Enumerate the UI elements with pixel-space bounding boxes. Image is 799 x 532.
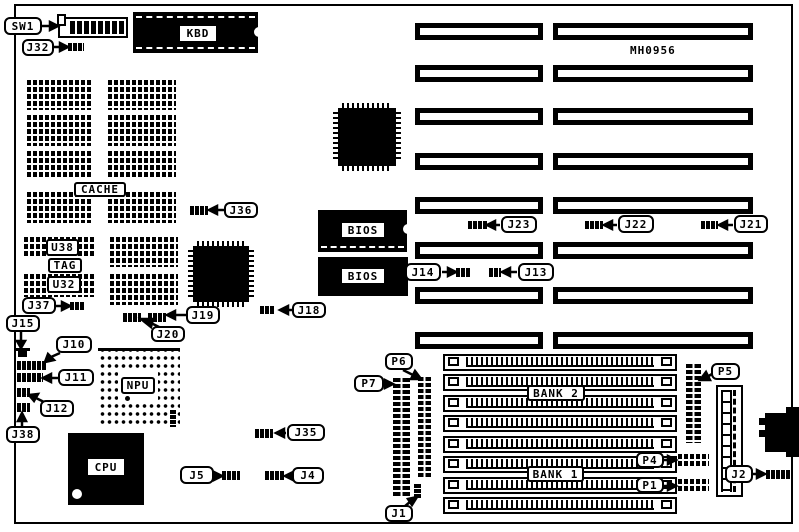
isa-slot xyxy=(415,242,543,259)
callout-j18: J18 xyxy=(292,302,326,318)
j23-connector xyxy=(468,221,487,229)
simm-socket xyxy=(443,354,677,371)
p5-connector xyxy=(686,364,701,443)
callout-j10: J10 xyxy=(56,336,92,353)
keyboard-din-pin xyxy=(759,430,765,437)
qfp-pins-right xyxy=(396,112,401,162)
callout-p6: P6 xyxy=(385,353,413,370)
j38-connector xyxy=(17,403,30,412)
j13-connector xyxy=(489,268,501,277)
j36-connector xyxy=(190,206,208,215)
j21-connector xyxy=(701,221,718,229)
j18-connector xyxy=(260,306,275,314)
p4-connector xyxy=(678,454,709,468)
callout-cache: CACHE xyxy=(74,182,126,197)
kbd-chip-dash-top xyxy=(136,16,255,18)
callout-p5: P5 xyxy=(711,363,740,380)
bios-label-1: BIOS xyxy=(342,223,384,237)
callout-j20: J20 xyxy=(151,326,185,342)
callout-j23: J23 xyxy=(501,216,537,233)
j15-connector xyxy=(15,348,30,357)
callout-j13: J13 xyxy=(518,263,554,281)
p7-connector xyxy=(393,378,410,497)
callout-j32: J32 xyxy=(22,39,54,56)
keyboard-din-flange xyxy=(786,407,799,457)
callout-j19: J19 xyxy=(186,306,220,324)
isa-slot xyxy=(553,287,753,304)
bios-chip-dash xyxy=(321,246,404,248)
bios-label-2: BIOS xyxy=(342,269,384,283)
cpu-pin1-dot xyxy=(72,489,82,499)
qfp-body xyxy=(338,108,396,166)
dip-segments xyxy=(70,21,124,34)
isa-slot xyxy=(553,153,753,170)
bios-chip-notch xyxy=(403,224,408,234)
callout-p1: P1 xyxy=(636,477,664,493)
callout-sw1: SW1 xyxy=(4,17,42,35)
callout-j35: J35 xyxy=(287,424,325,441)
callout-bank1: BANK 1 xyxy=(527,466,584,482)
callout-j21: J21 xyxy=(734,215,768,233)
isa-slot xyxy=(553,65,753,82)
sw1-dip-switch xyxy=(58,17,128,38)
isa-slot xyxy=(415,23,543,40)
cache-chip xyxy=(110,274,178,305)
qfp-pins-bottom xyxy=(342,166,392,171)
motherboard-diagram: KBD BIOS BIOS MH0956 xyxy=(0,0,799,532)
simm-socket xyxy=(443,415,677,432)
npu-side-pins xyxy=(170,410,176,427)
j32-connector xyxy=(68,43,84,51)
callout-j11: J11 xyxy=(58,369,94,386)
callout-j14: J14 xyxy=(405,263,441,281)
cache-chip xyxy=(108,115,176,146)
callout-p7: P7 xyxy=(354,375,384,392)
callout-j38: J38 xyxy=(6,426,40,443)
chipset-qfp-chip xyxy=(333,103,401,171)
cache-chip xyxy=(27,151,93,178)
isa-slot xyxy=(415,332,543,349)
callout-j36: J36 xyxy=(224,202,258,218)
dip-position1-marker xyxy=(57,14,66,26)
j20-connector xyxy=(123,313,141,322)
isa-slot xyxy=(553,108,753,125)
j19-connector xyxy=(148,313,166,322)
j37-connector xyxy=(70,302,84,310)
cache-chip xyxy=(110,237,178,267)
j11-connector xyxy=(17,373,43,382)
callout-j5: J5 xyxy=(180,466,214,484)
j12-connector xyxy=(17,388,30,397)
isa-slot xyxy=(553,197,753,214)
qfp-body xyxy=(193,246,249,302)
cache-chip xyxy=(27,115,93,146)
p1-connector xyxy=(678,479,709,493)
isa-slot xyxy=(553,23,753,40)
j35-connector xyxy=(255,429,273,438)
kbd-label: KBD xyxy=(180,26,216,41)
isa-slot xyxy=(415,65,543,82)
callout-u38: U38 xyxy=(46,239,79,256)
callout-j1: J1 xyxy=(385,505,413,522)
npu-pin1-dot xyxy=(125,396,130,401)
npu-label: NPU xyxy=(121,377,155,394)
j5-connector xyxy=(222,471,240,480)
chipset-qfp-chip xyxy=(188,241,254,307)
callout-j12: J12 xyxy=(40,400,74,417)
j1-connector xyxy=(414,484,421,499)
callout-j2: J2 xyxy=(725,465,753,483)
callout-j22: J22 xyxy=(618,215,654,233)
p6-connector xyxy=(418,377,431,478)
kbd-chip-dash-bottom xyxy=(136,47,255,49)
cache-chip xyxy=(108,80,176,110)
callout-j4: J4 xyxy=(292,467,324,484)
j22-connector xyxy=(585,221,603,229)
callout-j37: J37 xyxy=(22,297,56,314)
kbd-chip-notch xyxy=(254,27,259,37)
qfp-pins-right xyxy=(249,250,254,298)
simm-socket xyxy=(443,436,677,453)
cpu-label: CPU xyxy=(88,459,124,475)
j10-connector xyxy=(17,361,47,370)
isa-slot xyxy=(415,197,543,214)
simm-socket xyxy=(443,497,677,514)
isa-slot xyxy=(415,153,543,170)
callout-tag: TAG xyxy=(48,258,82,273)
j4-connector xyxy=(265,471,285,480)
callout-p4: P4 xyxy=(636,452,664,468)
cache-chip xyxy=(27,80,93,110)
isa-slot xyxy=(415,287,543,304)
isa-slot xyxy=(553,332,753,349)
board-part-number: MH0956 xyxy=(630,44,676,57)
callout-j15: J15 xyxy=(6,315,40,332)
callout-u32: U32 xyxy=(47,276,81,293)
keyboard-din-pin xyxy=(759,418,765,425)
isa-slot xyxy=(553,242,753,259)
cache-chip xyxy=(108,151,176,178)
callout-bank2: BANK 2 xyxy=(527,385,585,401)
isa-slot xyxy=(415,108,543,125)
j14-connector xyxy=(456,268,471,277)
j2-connector xyxy=(766,470,793,479)
